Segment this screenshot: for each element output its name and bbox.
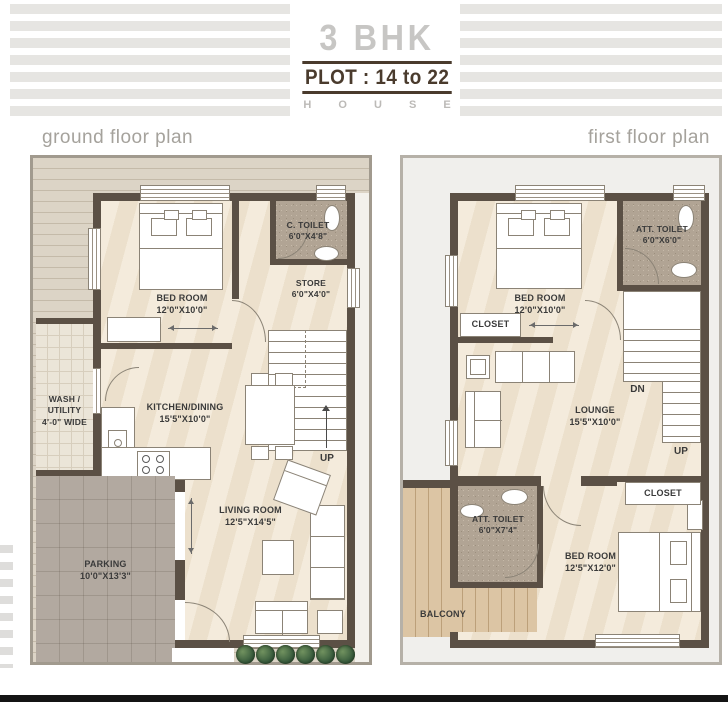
- plant: [316, 645, 335, 664]
- dining-chair: [251, 446, 269, 460]
- stairs: [662, 381, 701, 443]
- room-label-bedroom: BED ROOM 12'0"X10'0": [127, 292, 237, 316]
- side-strip: [355, 193, 369, 662]
- sofa: [310, 505, 345, 600]
- sliding-marker: [191, 498, 192, 554]
- room-label-att-toilet-2: ATT. TOILET 6'0"X7'4": [455, 514, 541, 537]
- window: [140, 185, 230, 201]
- wall: [270, 259, 347, 265]
- room-label-balcony: BALCONY: [405, 608, 481, 620]
- room-label-living: LIVING ROOM 12'5"X14'5": [193, 504, 308, 528]
- stove: [137, 451, 170, 478]
- room-label-att-toilet-1: ATT. TOILET 6'0"X6'0": [619, 224, 705, 247]
- window: [445, 420, 458, 466]
- door-opening: [175, 492, 185, 560]
- page-title: 3 BHK: [254, 18, 501, 58]
- entrance-opening: [175, 600, 185, 640]
- window: [88, 228, 101, 290]
- room-label-wash-utility: WASH / UTILITY 4'-0" WIDE: [42, 394, 87, 428]
- plant: [296, 645, 315, 664]
- window: [316, 185, 346, 201]
- sofa: [255, 601, 308, 634]
- wall: [403, 480, 450, 488]
- sofa: [495, 351, 575, 383]
- sofa: [465, 391, 501, 448]
- edge-stripes-decoration: [0, 545, 13, 668]
- plant: [336, 645, 355, 664]
- plant: [276, 645, 295, 664]
- window: [515, 185, 605, 201]
- room-label-lounge: LOUNGE 15'5"X10'0": [535, 404, 655, 428]
- caption-first-floor: first floor plan: [588, 127, 710, 149]
- dining-chair: [275, 446, 293, 460]
- stairs: [623, 329, 701, 382]
- room-label-c-toilet: C. TOILET 6'0"X4'8": [265, 220, 351, 243]
- bed: [496, 203, 582, 289]
- closet-box: CLOSET: [625, 482, 701, 505]
- toilet-sink: [671, 262, 697, 278]
- tv-unit: [317, 610, 343, 634]
- stairs-up-arrow: [326, 408, 327, 448]
- wall: [101, 343, 232, 349]
- stairs-dn-label: DN: [615, 384, 660, 395]
- side-table: [466, 355, 490, 379]
- room-label-parking: PARKING 10'0"X13'3": [43, 558, 168, 582]
- dining-table: [245, 385, 295, 445]
- stairs-up-label: UP: [307, 453, 347, 464]
- wall: [458, 337, 553, 343]
- caption-ground-floor: ground floor plan: [42, 127, 193, 149]
- window: [347, 268, 360, 308]
- sliding-marker: [168, 328, 218, 329]
- plant: [236, 645, 255, 664]
- ground-floor-plan: C. TOILET 6'0"X4'8" STORE 6'0"X4'0" UP B…: [30, 155, 372, 665]
- brochure-page: 3 BHK PLOT : 14 to 22 H O U S E ground f…: [0, 0, 728, 702]
- sliding-marker: [529, 325, 579, 326]
- window: [445, 255, 458, 307]
- bed: [139, 203, 223, 290]
- toilet-sink: [501, 489, 528, 505]
- first-floor-plan: ATT. TOILET 6'0"X6'0" DN UP BED ROOM 12'…: [400, 155, 722, 665]
- closet-box: CLOSET: [460, 313, 521, 337]
- closet-box: [107, 317, 161, 342]
- room-label-kitchen-dining: KITCHEN/DINING 15'5"X10'0": [125, 401, 245, 425]
- footer-bar: [0, 695, 728, 702]
- plot-subtitle: PLOT : 14 to 22: [302, 61, 452, 94]
- window: [595, 634, 680, 648]
- wall: [458, 476, 541, 486]
- walkway: [172, 648, 234, 662]
- window: [673, 185, 705, 201]
- room-label-store: STORE 6'0"X4'0": [271, 278, 351, 301]
- stair-landing: [623, 291, 701, 330]
- stairs-up-label: UP: [661, 446, 701, 457]
- coffee-table: [262, 540, 294, 575]
- wall: [581, 476, 617, 486]
- wall: [232, 193, 239, 299]
- bed: [618, 532, 701, 612]
- plant: [256, 645, 275, 664]
- toilet-sink: [314, 246, 339, 261]
- brand-tagline: H O U S E: [240, 99, 514, 111]
- title-block: 3 BHK PLOT : 14 to 22 H O U S E: [240, 18, 514, 111]
